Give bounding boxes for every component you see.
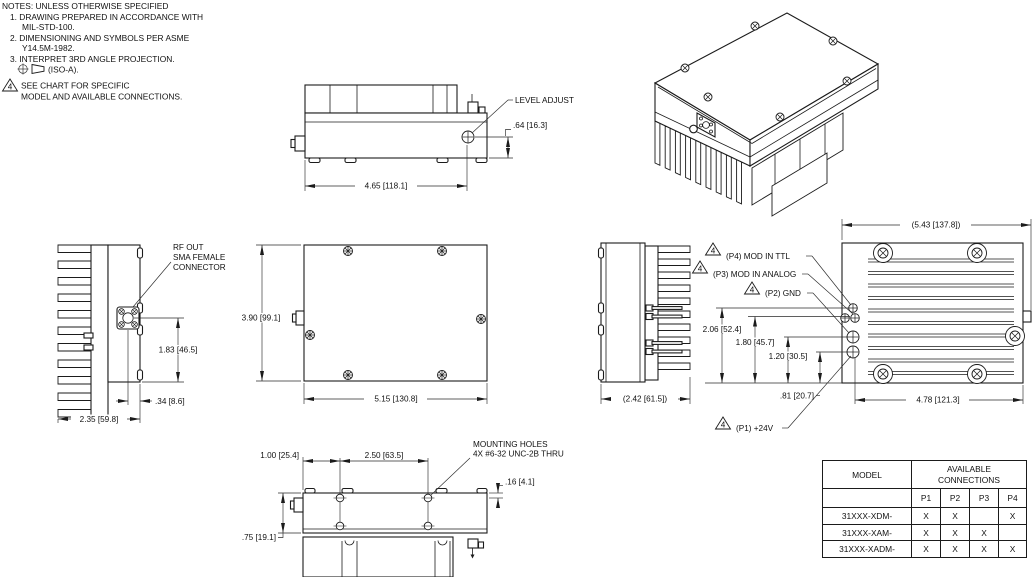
table-row: 31XXX-XDM- X X X — [823, 508, 1027, 525]
svg-text:4: 4 — [698, 265, 703, 274]
view-bottom-side: 1.00 [25.4] 2.50 [63.5] .16 [4.1] .75 [1… — [242, 440, 564, 577]
dim-pin-p2: 1.20 [30.5] — [769, 352, 808, 361]
view-left-side: RF OUT SMA FEMALE CONNECTOR 1.83 [46.5] … — [58, 243, 226, 424]
pin-icon — [841, 314, 850, 323]
corner-screw-icon — [968, 244, 987, 263]
dim-left-conn-offset: .34 [8.6] — [155, 397, 185, 406]
table-cell — [999, 525, 1027, 541]
dim-bot-height: .75 [19.1] — [242, 533, 276, 542]
third-angle-symbol-icon — [32, 65, 44, 74]
table-cell-empty — [823, 489, 912, 508]
flag-p1-icon: 4 — [716, 417, 731, 430]
iso-screw-icon — [751, 22, 759, 30]
notes-block: NOTES: UNLESS OTHERWISE SPECIFIED 1. DRA… — [2, 1, 203, 102]
callout-mounting-line1: MOUNTING HOLES — [473, 440, 548, 449]
screw-icon — [438, 371, 447, 380]
view-rear: (5.43 [137.8]) 4.78 [121.3] — [841, 219, 1031, 405]
pin-callouts: 2.06 [52.4] 1.80 [45.7] 1.20 [30.5] .81 … — [693, 243, 854, 433]
table-cell: X — [912, 508, 941, 525]
note-4-line2: MODEL AND AVAILABLE CONNECTIONS. — [21, 92, 182, 102]
flag-note-4-icon: 4 — [3, 79, 18, 92]
iso-screw-icon — [704, 93, 712, 101]
view-top-side: LEVEL ADJUST 4.65 [118.1] .64 [16.3] — [291, 85, 574, 191]
note-4-line1: SEE CHART FOR SPECIFIC — [21, 81, 130, 91]
callout-rf-out-line1: RF OUT — [173, 243, 203, 252]
table-cell: X — [912, 525, 941, 541]
dim-bot-edge: 1.00 [25.4] — [260, 451, 299, 460]
table-row: 31XXX-XADM- X X X X — [823, 541, 1027, 558]
dim-top-width: 4.65 [118.1] — [365, 182, 408, 191]
note-2-line1: 2. DIMENSIONING AND SYMBOLS PER ASME — [10, 33, 190, 43]
notes-title: NOTES: UNLESS OTHERWISE SPECIFIED — [2, 1, 168, 11]
callout-p4: (P4) MOD IN TTL — [726, 252, 790, 261]
rf-connector-stub — [295, 136, 305, 151]
svg-text:4: 4 — [8, 83, 13, 92]
view-isometric — [655, 13, 878, 216]
flag-p4-icon: 4 — [706, 243, 721, 256]
dim-rear-hole-span: 4.78 [121.3] — [916, 396, 959, 405]
table-cell: X — [999, 541, 1027, 558]
dim-left-depth: 2.35 [59.8] — [80, 415, 119, 424]
table-cell-model: 31XXX-XAM- — [823, 525, 912, 541]
table-col-p3: P3 — [970, 489, 999, 508]
dim-pin-p1: .81 [20.7] — [780, 392, 814, 401]
table-cell: X — [941, 508, 970, 525]
drawing-sheet: NOTES: UNLESS OTHERWISE SPECIFIED 1. DRA… — [0, 0, 1033, 577]
callout-p2: (P2) GND — [765, 289, 801, 298]
position-symbol-icon — [18, 64, 29, 75]
trimpot-icon — [468, 539, 484, 559]
table-cell-model: 31XXX-XDM- — [823, 508, 912, 525]
table-row: 31XXX-XAM- X X X — [823, 525, 1027, 541]
table-cell: X — [970, 541, 999, 558]
dim-right-depth: (2.42 [61.5]) — [623, 395, 667, 404]
dim-pin-p3: 1.80 [45.7] — [736, 338, 775, 347]
table-col-p2: P2 — [941, 489, 970, 508]
table-header-available-connections: AVAILABLE CONNECTIONS — [912, 461, 1027, 489]
dim-level-offset: .64 [16.3] — [513, 121, 547, 130]
callout-level-adjust: LEVEL ADJUST — [515, 96, 574, 105]
screw-icon — [306, 331, 315, 340]
screw-icon — [344, 247, 353, 256]
iso-screw-icon — [829, 37, 837, 45]
screw-icon — [438, 247, 447, 256]
iso-screw-icon — [843, 77, 851, 85]
table-cell: X — [970, 525, 999, 541]
corner-screw-icon — [874, 244, 893, 263]
rf-connector-stub — [294, 498, 303, 512]
edge-screw-icon — [1006, 327, 1025, 346]
corner-screw-icon — [968, 365, 987, 384]
dim-rear-overall: (5.43 [137.8]) — [912, 221, 961, 230]
iso-screw-icon — [776, 113, 784, 121]
dim-left-conn-height: 1.83 [46.5] — [159, 346, 198, 355]
dim-front-height: 3.90 [99.1] — [242, 314, 281, 323]
screw-icon — [477, 315, 486, 324]
table-cell: X — [941, 541, 970, 558]
table-header-model: MODEL — [823, 461, 912, 489]
dim-front-width: 5.15 [130.8] — [374, 395, 417, 404]
pin-p1-icon — [847, 346, 859, 358]
view-front: 3.90 [99.1] 5.15 [130.8] — [233, 245, 487, 404]
rf-connector-stub — [296, 311, 304, 325]
pin-p3-icon — [851, 314, 860, 323]
table-cell: X — [941, 525, 970, 541]
iso-screw-icon — [681, 64, 689, 72]
svg-text:4: 4 — [750, 286, 755, 295]
callout-rf-out-line2: SMA FEMALE — [173, 253, 226, 262]
table-cell: X — [999, 508, 1027, 525]
callout-mounting-line2: 4X #6-32 UNC-2B THRU — [473, 450, 564, 459]
flag-p3-icon: 4 — [693, 261, 708, 274]
note-1-line1: 1. DRAWING PREPARED IN ACCORDANCE WITH — [10, 12, 203, 22]
dim-bot-hole-offset: .16 [4.1] — [505, 478, 535, 487]
note-1-line2: MIL-STD-100. — [22, 22, 75, 32]
flag-p2-icon: 4 — [745, 282, 760, 295]
corner-screw-icon — [874, 365, 893, 384]
table-cell: X — [912, 541, 941, 558]
svg-text:4: 4 — [711, 247, 716, 256]
note-2-line2: Y14.5M-1982. — [22, 43, 75, 53]
iso-label: (ISO-A). — [48, 65, 79, 75]
callout-p1: (P1) +24V — [736, 424, 774, 433]
dim-pin-p4: 2.06 [52.4] — [703, 325, 742, 334]
table-col-p1: P1 — [912, 489, 941, 508]
screw-icon — [344, 371, 353, 380]
callout-rf-out-line3: CONNECTOR — [173, 263, 226, 272]
svg-text:4: 4 — [721, 421, 726, 430]
table-cell-model: 31XXX-XADM- — [823, 541, 912, 558]
table-col-p4: P4 — [999, 489, 1027, 508]
callout-p3: (P3) MOD IN ANALOG — [713, 270, 796, 279]
table-cell — [970, 508, 999, 525]
view-right-side: (2.42 [61.5]) — [599, 243, 691, 404]
rf-connector-stub — [1023, 311, 1031, 322]
note-3-line1: 3. INTERPRET 3RD ANGLE PROJECTION. — [10, 54, 175, 64]
dim-bot-span: 2.50 [63.5] — [365, 451, 404, 460]
connections-table: MODEL AVAILABLE CONNECTIONS P1 P2 P3 P4 … — [822, 460, 1027, 558]
trimpot-icon — [468, 94, 485, 113]
